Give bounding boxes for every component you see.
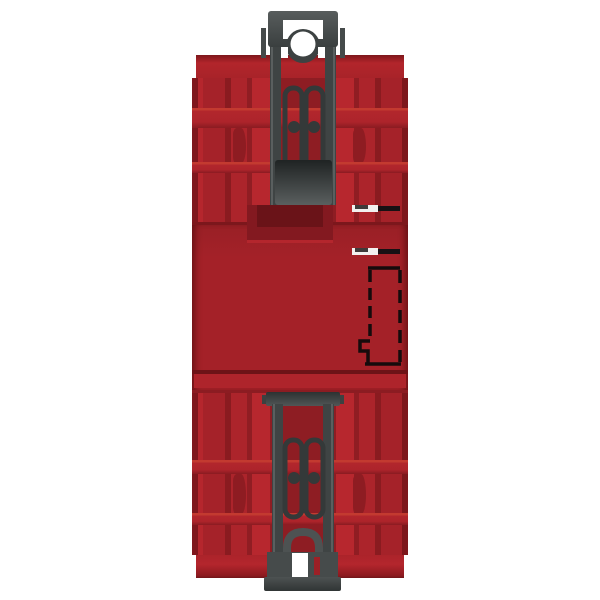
top-din-clip <box>245 8 355 245</box>
clip-side-tab <box>340 28 345 58</box>
dashed-cutout <box>355 263 405 369</box>
foot-opening <box>292 553 308 577</box>
clip-side-tab <box>261 28 266 58</box>
side-slot-upper <box>352 204 400 213</box>
side-slot-lower <box>352 247 400 256</box>
keyhole-circle <box>291 32 316 57</box>
product-image <box>0 0 600 600</box>
bottom-din-clip <box>245 385 355 595</box>
